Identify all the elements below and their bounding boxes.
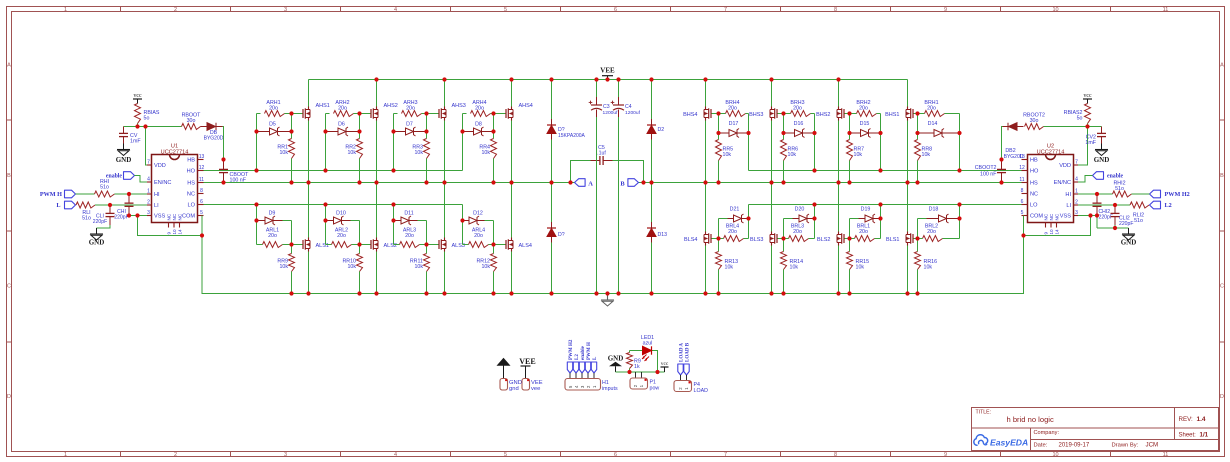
svg-text:pow: pow	[650, 386, 660, 392]
svg-text:NC: NC	[187, 192, 195, 198]
svg-text:azul: azul	[643, 341, 653, 347]
svg-text:11: 11	[199, 177, 204, 183]
svg-text:D12: D12	[473, 211, 483, 217]
svg-text:BYG20D: BYG20D	[1004, 154, 1024, 160]
svg-text:10: 10	[172, 229, 177, 235]
svg-text:UCC27714: UCC27714	[161, 149, 189, 155]
svg-text:1mF: 1mF	[130, 139, 141, 145]
svg-text:D18: D18	[929, 207, 939, 213]
svg-text:HO: HO	[187, 169, 196, 175]
svg-text:GND: GND	[1094, 156, 1110, 164]
svg-text:ALS4: ALS4	[519, 243, 532, 249]
svg-text:PWM H: PWM H	[40, 191, 62, 198]
svg-text:20o: 20o	[474, 233, 483, 239]
svg-text:10k: 10k	[854, 152, 863, 158]
svg-text:12: 12	[1019, 165, 1025, 171]
svg-text:20o: 20o	[793, 229, 802, 235]
svg-text:12: 12	[199, 165, 205, 171]
svg-text:LI: LI	[1066, 203, 1071, 209]
svg-text:C: C	[1220, 284, 1224, 290]
svg-text:NC: NC	[1049, 213, 1054, 220]
svg-text:L2: L2	[1165, 202, 1172, 209]
svg-text:AHS4: AHS4	[519, 103, 533, 109]
svg-text:2: 2	[1075, 200, 1078, 206]
svg-text:D13: D13	[658, 232, 668, 238]
svg-text:HS: HS	[1030, 181, 1038, 187]
svg-text:vcc: vcc	[1083, 93, 1091, 99]
svg-text:20o: 20o	[338, 106, 347, 112]
svg-text:BLS4: BLS4	[684, 237, 697, 243]
svg-text:BYG20D: BYG20D	[204, 136, 224, 142]
svg-text:D5: D5	[269, 122, 276, 128]
svg-text:C: C	[7, 284, 11, 290]
svg-text:LOAD B: LOAD B	[686, 342, 691, 362]
svg-text:9: 9	[167, 232, 172, 235]
svg-text:C3: C3	[603, 104, 610, 110]
svg-text:11: 11	[1163, 7, 1169, 13]
svg-text:h brid no logic: h brid no logic	[1007, 415, 1054, 424]
svg-text:14: 14	[178, 229, 183, 235]
svg-text:A: A	[1220, 63, 1224, 69]
svg-text:D: D	[7, 394, 11, 400]
svg-text:D11: D11	[404, 211, 413, 217]
svg-text:D16: D16	[794, 121, 804, 127]
svg-text:10k: 10k	[414, 264, 423, 270]
svg-text:10k: 10k	[725, 265, 734, 271]
svg-text:LOAD: LOAD	[694, 388, 709, 394]
svg-text:EN/NC: EN/NC	[1054, 180, 1071, 186]
svg-text:NC: NC	[1030, 192, 1038, 198]
svg-text:220pF: 220pF	[1099, 215, 1113, 221]
svg-text:11: 11	[1163, 452, 1169, 458]
svg-text:LOAD A: LOAD A	[680, 343, 685, 362]
svg-text:BHS3: BHS3	[749, 112, 763, 118]
svg-text:REV:: REV:	[1179, 416, 1193, 423]
svg-text:D?: D?	[558, 232, 565, 238]
svg-text:TITLE:: TITLE:	[976, 410, 992, 416]
svg-text:1: 1	[147, 189, 150, 195]
svg-text:HB: HB	[187, 158, 195, 164]
svg-text:3: 3	[284, 452, 287, 458]
svg-text:COM: COM	[1030, 214, 1043, 220]
svg-text:L2: L2	[575, 354, 580, 360]
svg-text:5o: 5o	[1077, 116, 1083, 122]
svg-text:100 nF: 100 nF	[230, 178, 247, 184]
svg-text:10: 10	[1049, 229, 1054, 235]
svg-text:1: 1	[64, 7, 67, 13]
svg-text:AHS3: AHS3	[452, 103, 466, 109]
svg-text:A: A	[7, 63, 11, 69]
svg-text:20o: 20o	[269, 106, 278, 112]
svg-text:10k: 10k	[788, 152, 797, 158]
svg-text:1200uf: 1200uf	[603, 110, 619, 116]
svg-text:NC: NC	[1044, 213, 1049, 220]
svg-text:1: 1	[64, 452, 67, 458]
svg-text:NC: NC	[178, 213, 183, 220]
svg-text:A: A	[588, 180, 593, 187]
svg-text:220pF: 220pF	[114, 215, 128, 221]
svg-text:L: L	[56, 202, 60, 209]
svg-text:vee: vee	[531, 386, 540, 392]
svg-text:BLS1: BLS1	[886, 237, 899, 243]
svg-text:51o: 51o	[1134, 218, 1143, 224]
svg-text:ALS1: ALS1	[316, 243, 329, 249]
svg-text:20o: 20o	[728, 106, 737, 112]
svg-text:8: 8	[834, 7, 837, 13]
svg-text:HO: HO	[1030, 169, 1039, 175]
svg-text:9: 9	[944, 7, 947, 13]
svg-text:2: 2	[174, 7, 177, 13]
svg-text:100 nF: 100 nF	[980, 172, 997, 178]
svg-text:10k: 10k	[723, 152, 732, 158]
svg-text:10k: 10k	[279, 264, 288, 270]
svg-text:HI: HI	[1065, 192, 1071, 198]
svg-text:10k: 10k	[924, 265, 933, 271]
svg-text:VSS: VSS	[1060, 214, 1071, 220]
svg-text:10k: 10k	[347, 150, 356, 156]
svg-text:20o: 20o	[405, 233, 414, 239]
svg-text:20o: 20o	[475, 106, 484, 112]
svg-text:20o: 20o	[406, 106, 415, 112]
svg-text:20o: 20o	[337, 233, 346, 239]
svg-text:14: 14	[1055, 229, 1060, 235]
svg-text:EN/NC: EN/NC	[154, 180, 171, 186]
svg-text:PWM H2: PWM H2	[1165, 191, 1190, 198]
svg-text:VEE: VEE	[600, 67, 615, 75]
svg-text:BHS1: BHS1	[885, 112, 899, 118]
svg-text:9: 9	[1044, 232, 1049, 235]
svg-text:6: 6	[1021, 199, 1024, 205]
svg-text:51o: 51o	[82, 216, 91, 222]
svg-text:10k: 10k	[279, 150, 288, 156]
svg-text:VDD: VDD	[154, 163, 166, 169]
svg-text:VSS: VSS	[154, 214, 165, 220]
svg-text:D7: D7	[406, 122, 413, 128]
svg-text:6: 6	[200, 199, 203, 205]
svg-text:JCM: JCM	[1146, 442, 1159, 449]
svg-text:enable: enable	[1107, 174, 1124, 180]
svg-text:10k: 10k	[790, 265, 799, 271]
svg-text:1200uf: 1200uf	[625, 110, 641, 116]
svg-text:EasyEDA: EasyEDA	[990, 438, 1028, 448]
svg-text:7: 7	[724, 452, 727, 458]
svg-text:.1uf: .1uf	[597, 151, 606, 157]
svg-text:HI: HI	[154, 192, 160, 198]
svg-text:20o: 20o	[859, 106, 868, 112]
svg-text:1mF: 1mF	[1085, 140, 1096, 146]
svg-text:3: 3	[284, 7, 287, 13]
svg-text:10k: 10k	[414, 150, 423, 156]
svg-text:30o: 30o	[1030, 118, 1039, 124]
svg-text:B: B	[7, 173, 11, 179]
svg-text:vcc: vcc	[133, 93, 141, 99]
svg-text:3: 3	[147, 210, 150, 216]
svg-text:GND: GND	[608, 355, 624, 363]
svg-text:4: 4	[394, 7, 397, 13]
svg-text:1: 1	[1075, 189, 1078, 195]
svg-text:D20: D20	[795, 207, 805, 213]
svg-text:4: 4	[394, 452, 397, 458]
svg-text:11: 11	[1019, 177, 1024, 183]
svg-text:VEE: VEE	[519, 357, 535, 366]
svg-text:7: 7	[1075, 160, 1078, 166]
svg-text:2019-09-17: 2019-09-17	[1059, 443, 1090, 449]
svg-text:5o: 5o	[144, 116, 150, 122]
svg-text:20o: 20o	[859, 229, 868, 235]
svg-text:10k: 10k	[481, 150, 490, 156]
svg-text:51o: 51o	[100, 185, 109, 191]
svg-text:B: B	[620, 180, 625, 187]
svg-text:UCC27714: UCC27714	[1037, 149, 1065, 155]
svg-text:D21: D21	[730, 207, 740, 213]
svg-text:8: 8	[834, 452, 837, 458]
svg-text:20o: 20o	[927, 106, 936, 112]
svg-text:BHS4: BHS4	[683, 112, 697, 118]
svg-text:LO: LO	[1030, 203, 1038, 209]
svg-text:Sheet:: Sheet:	[1179, 433, 1197, 439]
svg-text:D19: D19	[861, 207, 871, 213]
svg-text:7: 7	[724, 7, 727, 13]
svg-text:B: B	[1220, 173, 1224, 179]
svg-text:VDD: VDD	[1059, 163, 1071, 169]
svg-text:10: 10	[1052, 452, 1058, 458]
svg-text:8: 8	[1021, 188, 1024, 194]
svg-text:imputs: imputs	[602, 386, 618, 392]
svg-text:D6: D6	[338, 122, 345, 128]
svg-text:10: 10	[1052, 7, 1058, 13]
svg-text:BLS3: BLS3	[750, 237, 763, 243]
svg-text:5: 5	[504, 452, 507, 458]
svg-text:AHS2: AHS2	[384, 103, 398, 109]
svg-text:HS: HS	[187, 181, 195, 187]
svg-text:10k: 10k	[856, 265, 865, 271]
svg-text:4: 4	[147, 177, 150, 183]
svg-text:Drawn By:: Drawn By:	[1112, 443, 1139, 449]
svg-text:GND: GND	[1121, 239, 1137, 247]
svg-text:5: 5	[200, 210, 203, 216]
svg-text:D15: D15	[860, 121, 870, 127]
svg-text:20o: 20o	[268, 233, 277, 239]
svg-text:220pF: 220pF	[93, 219, 107, 225]
svg-text:8: 8	[200, 188, 203, 194]
svg-text:HB: HB	[1030, 158, 1038, 164]
svg-text:13: 13	[199, 154, 205, 160]
svg-text:D: D	[1220, 394, 1224, 400]
svg-text:4: 4	[1075, 177, 1078, 183]
svg-text:7: 7	[147, 160, 150, 166]
svg-text:GND: GND	[89, 239, 105, 247]
svg-text:220pF: 220pF	[1119, 221, 1133, 227]
svg-text:51o: 51o	[1115, 186, 1124, 192]
svg-text:C4: C4	[625, 104, 632, 110]
svg-text:D9: D9	[269, 211, 276, 217]
svg-text:10k: 10k	[481, 264, 490, 270]
svg-text:LO: LO	[188, 203, 196, 209]
svg-text:CBOOT2: CBOOT2	[975, 165, 997, 171]
svg-text:3: 3	[1075, 210, 1078, 216]
svg-text:20o: 20o	[793, 106, 802, 112]
svg-text:10k: 10k	[347, 264, 356, 270]
svg-text:AHS1: AHS1	[316, 103, 330, 109]
svg-text:6: 6	[614, 452, 617, 458]
svg-text:D8: D8	[475, 122, 482, 128]
svg-text:NC: NC	[1055, 213, 1060, 220]
svg-text:GND: GND	[116, 156, 132, 164]
svg-text:9: 9	[944, 452, 947, 458]
svg-text:D2: D2	[658, 127, 665, 133]
svg-text:COM: COM	[182, 214, 195, 220]
svg-text:vcc: vcc	[661, 361, 669, 367]
svg-text:enable: enable	[581, 345, 586, 360]
svg-text:ALS2: ALS2	[384, 243, 397, 249]
svg-text:1.4: 1.4	[1197, 416, 1206, 423]
svg-text:D14: D14	[928, 121, 938, 127]
svg-text:PWM H2: PWM H2	[569, 339, 574, 360]
svg-text:6: 6	[614, 7, 617, 13]
svg-text:NC: NC	[172, 213, 177, 220]
svg-text:5: 5	[1021, 210, 1024, 216]
svg-text:1/1: 1/1	[1200, 432, 1209, 439]
svg-text:2: 2	[147, 200, 150, 206]
svg-text:10k: 10k	[922, 152, 931, 158]
svg-text:D10: D10	[336, 211, 346, 217]
svg-text:BHS2: BHS2	[816, 112, 830, 118]
svg-text:1k: 1k	[634, 364, 640, 370]
svg-text:20o: 20o	[728, 229, 737, 235]
svg-text:LI: LI	[154, 203, 159, 209]
svg-text:2: 2	[174, 452, 177, 458]
svg-text:D17: D17	[729, 121, 739, 127]
svg-text:Date:: Date:	[1034, 443, 1048, 449]
svg-text:NC: NC	[167, 213, 172, 220]
svg-text:30o: 30o	[187, 118, 196, 124]
svg-text:20o: 20o	[927, 229, 936, 235]
svg-text:BLS2: BLS2	[817, 237, 830, 243]
svg-text:15KPA200A: 15KPA200A	[558, 133, 586, 139]
svg-text:PWM H: PWM H	[587, 342, 592, 360]
svg-text:Company:: Company:	[1034, 430, 1060, 436]
svg-text:5: 5	[504, 7, 507, 13]
svg-text:gnd: gnd	[509, 386, 519, 392]
